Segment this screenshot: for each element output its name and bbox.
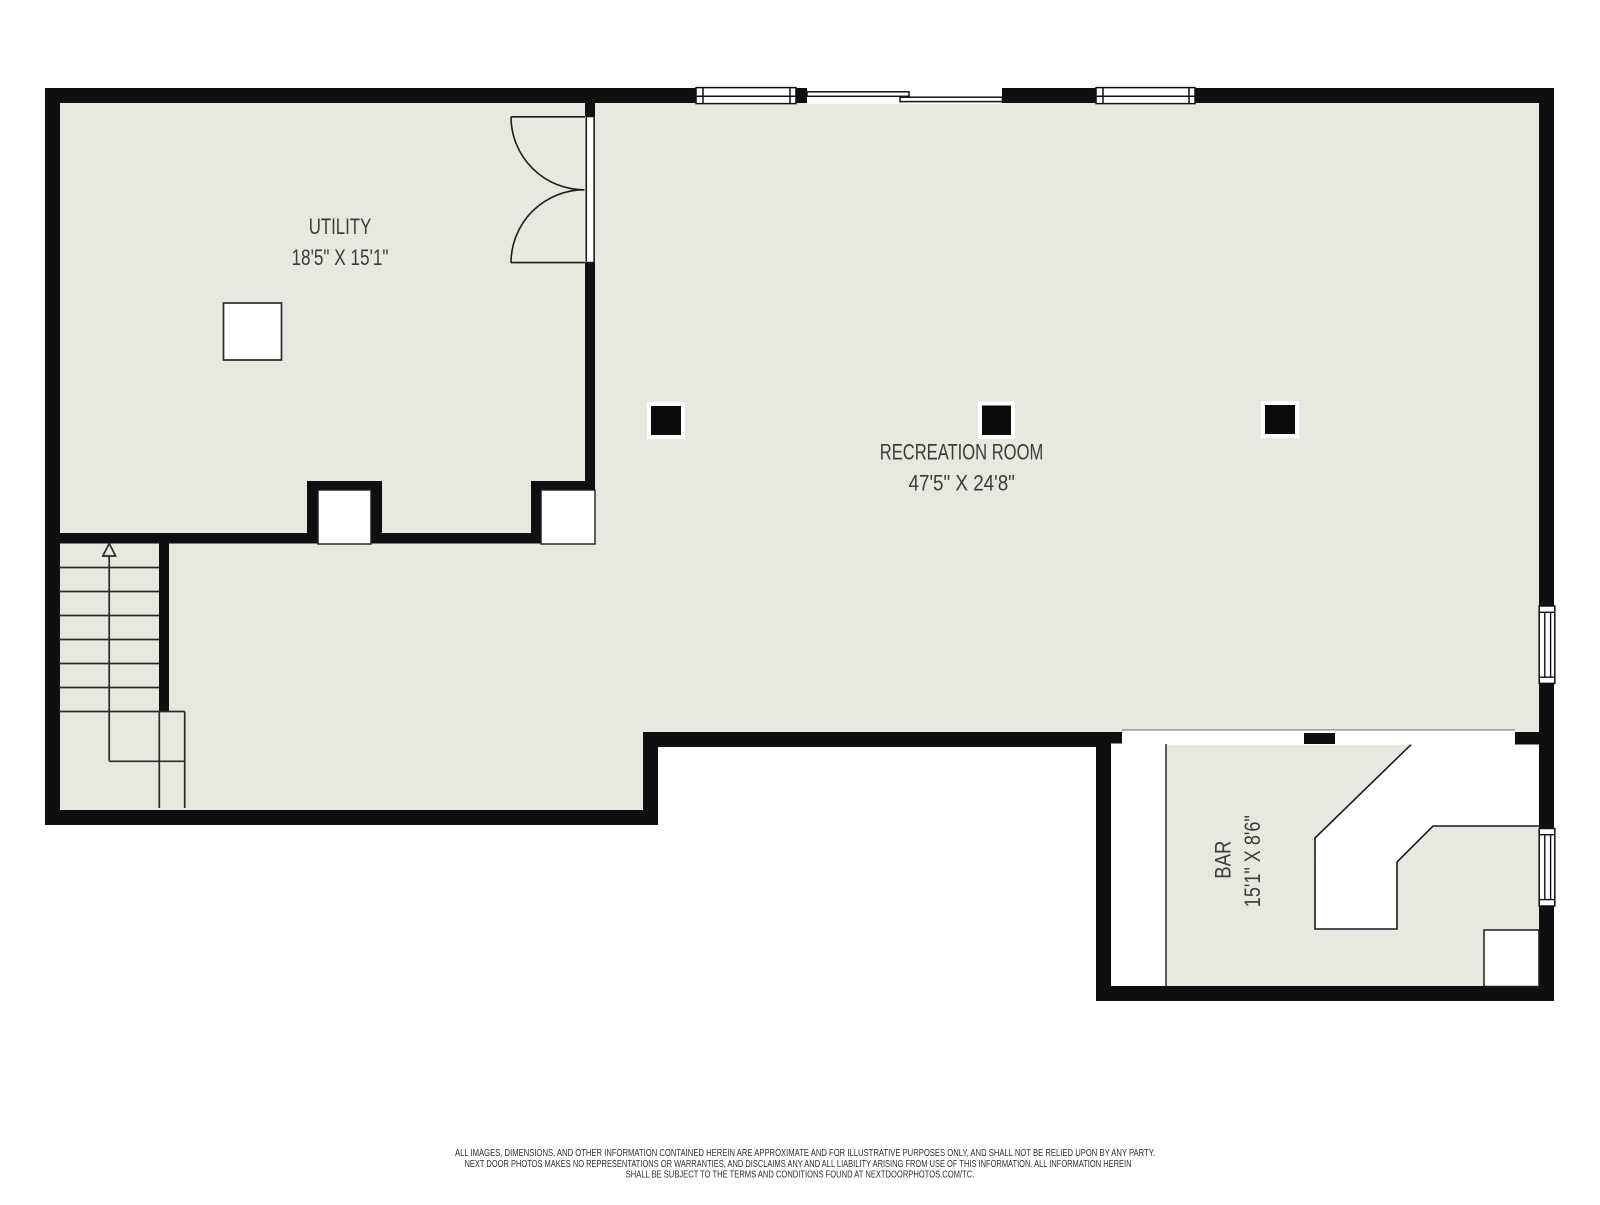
svg-text:UTILITY: UTILITY bbox=[309, 214, 372, 239]
svg-text:RECREATION ROOM: RECREATION ROOM bbox=[880, 440, 1044, 465]
svg-text:NEXT DOOR PHOTOS MAKES NO REPR: NEXT DOOR PHOTOS MAKES NO REPRESENTATION… bbox=[465, 1159, 1132, 1170]
svg-text:BAR: BAR bbox=[1210, 841, 1235, 879]
svg-text:SHALL BE SUBJECT TO THE TERMS: SHALL BE SUBJECT TO THE TERMS AND CONDIT… bbox=[626, 1169, 975, 1180]
svg-text:18'5" X 15'1": 18'5" X 15'1" bbox=[292, 245, 389, 270]
svg-text:47'5" X 24'8": 47'5" X 24'8" bbox=[909, 471, 1015, 496]
svg-text:ALL IMAGES, DIMENSIONS, AND OT: ALL IMAGES, DIMENSIONS, AND OTHER INFORM… bbox=[455, 1148, 1155, 1159]
svg-text:15'1" X 8'6": 15'1" X 8'6" bbox=[1240, 815, 1265, 907]
